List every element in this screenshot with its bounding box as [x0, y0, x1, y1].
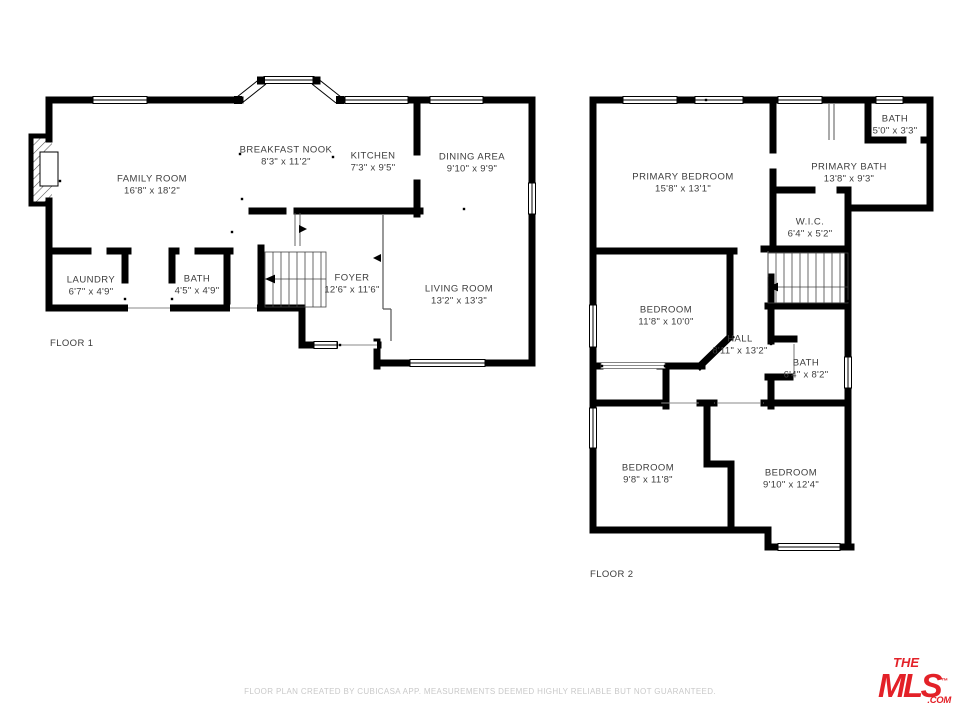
room-label-laundry: LAUNDRY 6'7" x 4'9": [67, 275, 115, 298]
floor1-label: FLOOR 1: [50, 338, 93, 349]
floorplan-page: FAMILY ROOM 16'8" x 18'2" BREAKFAST NOOK…: [0, 0, 960, 720]
room-label-family-room: FAMILY ROOM 16'8" x 18'2": [117, 174, 187, 197]
room-name: BATH: [873, 114, 918, 125]
room-dims: 8'3" x 11'2": [240, 157, 333, 168]
room-label-kitchen: KITCHEN 7'3" x 9'5": [351, 151, 396, 174]
room-name: BATH: [175, 274, 220, 285]
room-dims: 11'8" x 10'0": [638, 317, 693, 328]
floor1-walls: [49, 100, 532, 366]
room-name: LAUNDRY: [67, 275, 115, 286]
floor2-dots: [601, 99, 925, 432]
room-name: KITCHEN: [351, 151, 396, 162]
room-dims: 9'10" x 9'9": [439, 164, 505, 175]
room-dims: 16'8" x 18'2": [117, 186, 187, 197]
room-label-hall: HALL 8'11" x 13'2": [712, 334, 767, 357]
room-name: PRIMARY BEDROOM: [632, 172, 733, 183]
floor1-plan: [31, 77, 536, 367]
room-label-bath-mid: BATH 6'4" x 8'2": [784, 358, 829, 381]
room-label-wic: W.I.C. 6'4" x 5'2": [788, 217, 833, 240]
room-label-dining-area: DINING AREA 9'10" x 9'9": [439, 152, 505, 175]
room-dims: 13'8" x 9'3": [811, 174, 887, 185]
room-dims: 4'5" x 4'9": [175, 286, 220, 297]
room-name: BEDROOM: [763, 468, 819, 479]
floor2-label: FLOOR 2: [590, 569, 633, 580]
room-label-living-room: LIVING ROOM 13'2" x 13'3": [425, 284, 493, 307]
floor1-stairs: [265, 252, 326, 307]
room-name: LIVING ROOM: [425, 284, 493, 295]
room-label-bedroom-mid: BEDROOM 11'8" x 10'0": [638, 305, 693, 328]
room-dims: 9'8" x 11'8": [622, 475, 674, 486]
room-label-primary-bath: PRIMARY BATH 13'8" x 9'3": [811, 162, 887, 185]
room-name: BEDROOM: [638, 305, 693, 316]
floor1-windows: [93, 97, 536, 367]
room-dims: 15'8" x 13'1": [632, 184, 733, 195]
room-dims: 12'6" x 11'6": [324, 285, 379, 296]
bay-window: [234, 77, 344, 105]
room-name: BEDROOM: [622, 463, 674, 474]
room-name: DINING AREA: [439, 152, 505, 163]
room-label-foyer: FOYER 12'6" x 11'6": [324, 273, 379, 296]
room-label-bath-f1: BATH 4'5" x 4'9": [175, 274, 220, 297]
mls-logo: THE MLS™ .COM: [878, 657, 952, 705]
room-label-primary-bedroom: PRIMARY BEDROOM 15'8" x 13'1": [632, 172, 733, 195]
fireplace: [31, 136, 58, 204]
disclaimer-text: FLOOR PLAN CREATED BY CUBICASA APP. MEAS…: [0, 687, 960, 696]
room-dims: 9'10" x 12'4": [763, 480, 819, 491]
room-label-bedroom-br: BEDROOM 9'10" x 12'4": [763, 468, 819, 491]
room-name: PRIMARY BATH: [811, 162, 887, 173]
room-name: BREAKFAST NOOK: [240, 145, 333, 156]
mls-logo-tm: ™: [941, 678, 948, 685]
room-name: BATH: [784, 358, 829, 369]
room-name: W.I.C.: [788, 217, 833, 228]
floor2-stairs: [768, 253, 848, 303]
room-dims: 13'2" x 13'3": [425, 296, 493, 307]
room-name: FAMILY ROOM: [117, 174, 187, 185]
room-label-bath-top: BATH 5'0" x 3'3": [873, 114, 918, 137]
room-name: HALL: [712, 334, 767, 345]
room-dims: 7'3" x 9'5": [351, 163, 396, 174]
room-dims: 6'7" x 4'9": [67, 287, 115, 298]
room-dims: 6'4" x 5'2": [788, 229, 833, 240]
room-name: FOYER: [324, 273, 379, 284]
room-dims: 8'11" x 13'2": [712, 346, 767, 357]
room-dims: 5'0" x 3'3": [873, 126, 918, 137]
room-label-breakfast-nook: BREAKFAST NOOK 8'3" x 11'2": [240, 145, 333, 168]
room-label-bedroom-bl: BEDROOM 9'8" x 11'8": [622, 463, 674, 486]
room-dims: 6'4" x 8'2": [784, 370, 829, 381]
floor1-thresholds: [128, 305, 377, 349]
